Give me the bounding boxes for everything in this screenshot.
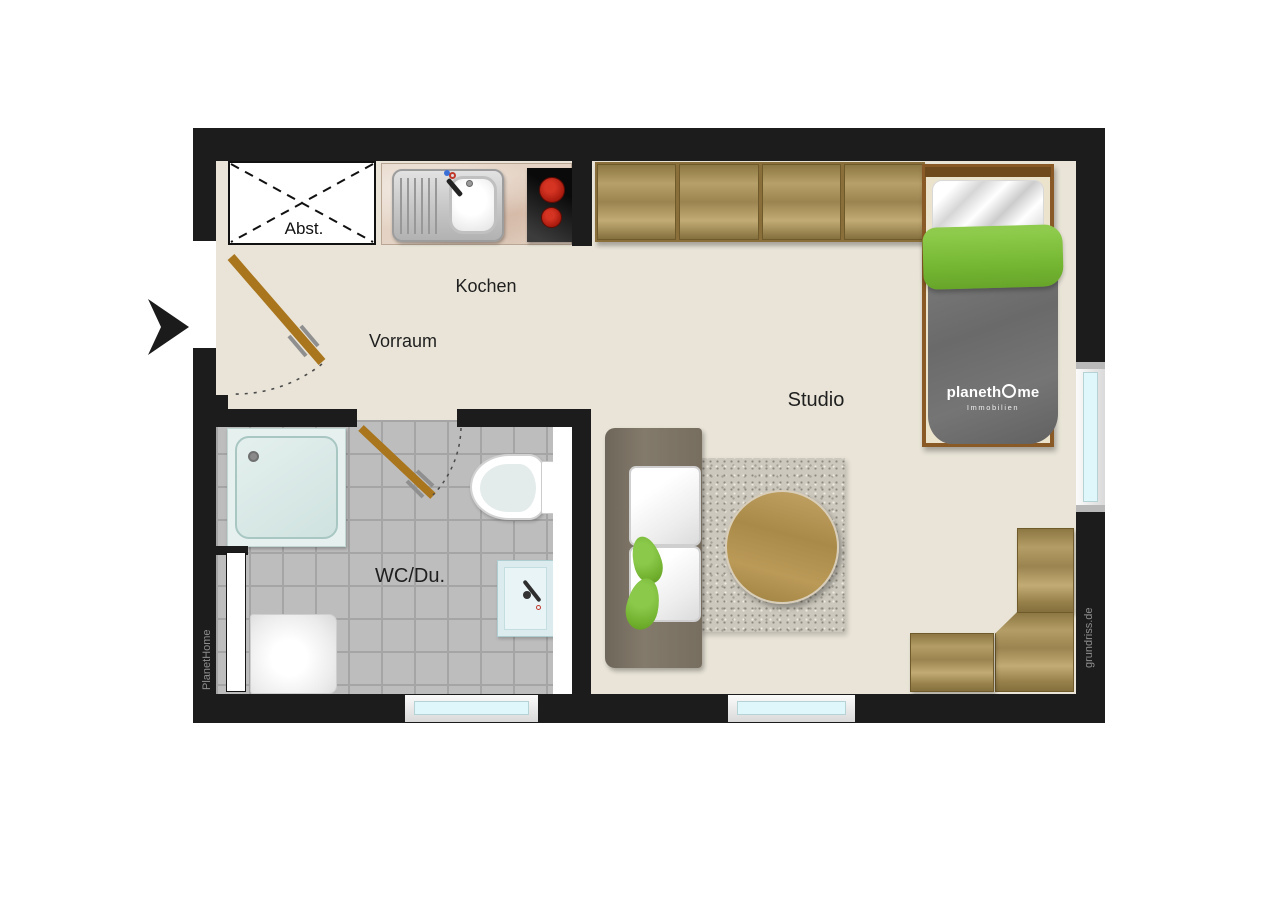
floorplan-page: Abst. planethme Immobilien	[0, 0, 1280, 905]
watermark-planethome: PlanetHome	[201, 629, 213, 690]
studio-label: Studio	[746, 389, 886, 412]
bath-door-swing-arc	[433, 428, 461, 495]
bed-logo-subtitle: Immobilien	[928, 403, 1058, 412]
entry-door-leaf	[231, 257, 322, 362]
kitchen-label: Kochen	[416, 276, 556, 297]
entry-door-swing-arc	[231, 364, 322, 394]
watermark-grundriss: grundriss.de	[1083, 607, 1095, 668]
bed-logo: planethme Immobilien	[928, 384, 1058, 412]
hall-label: Vorraum	[333, 331, 473, 352]
bath-door-leaf	[361, 428, 433, 496]
bath-label: WC/Du.	[340, 565, 480, 588]
entrance-arrow-icon	[148, 299, 189, 355]
bed-green-sheet	[922, 224, 1064, 290]
plan-overlay	[0, 0, 1280, 905]
bed-logo-title: planethme	[928, 384, 1058, 401]
logo-o-icon	[1002, 384, 1016, 398]
